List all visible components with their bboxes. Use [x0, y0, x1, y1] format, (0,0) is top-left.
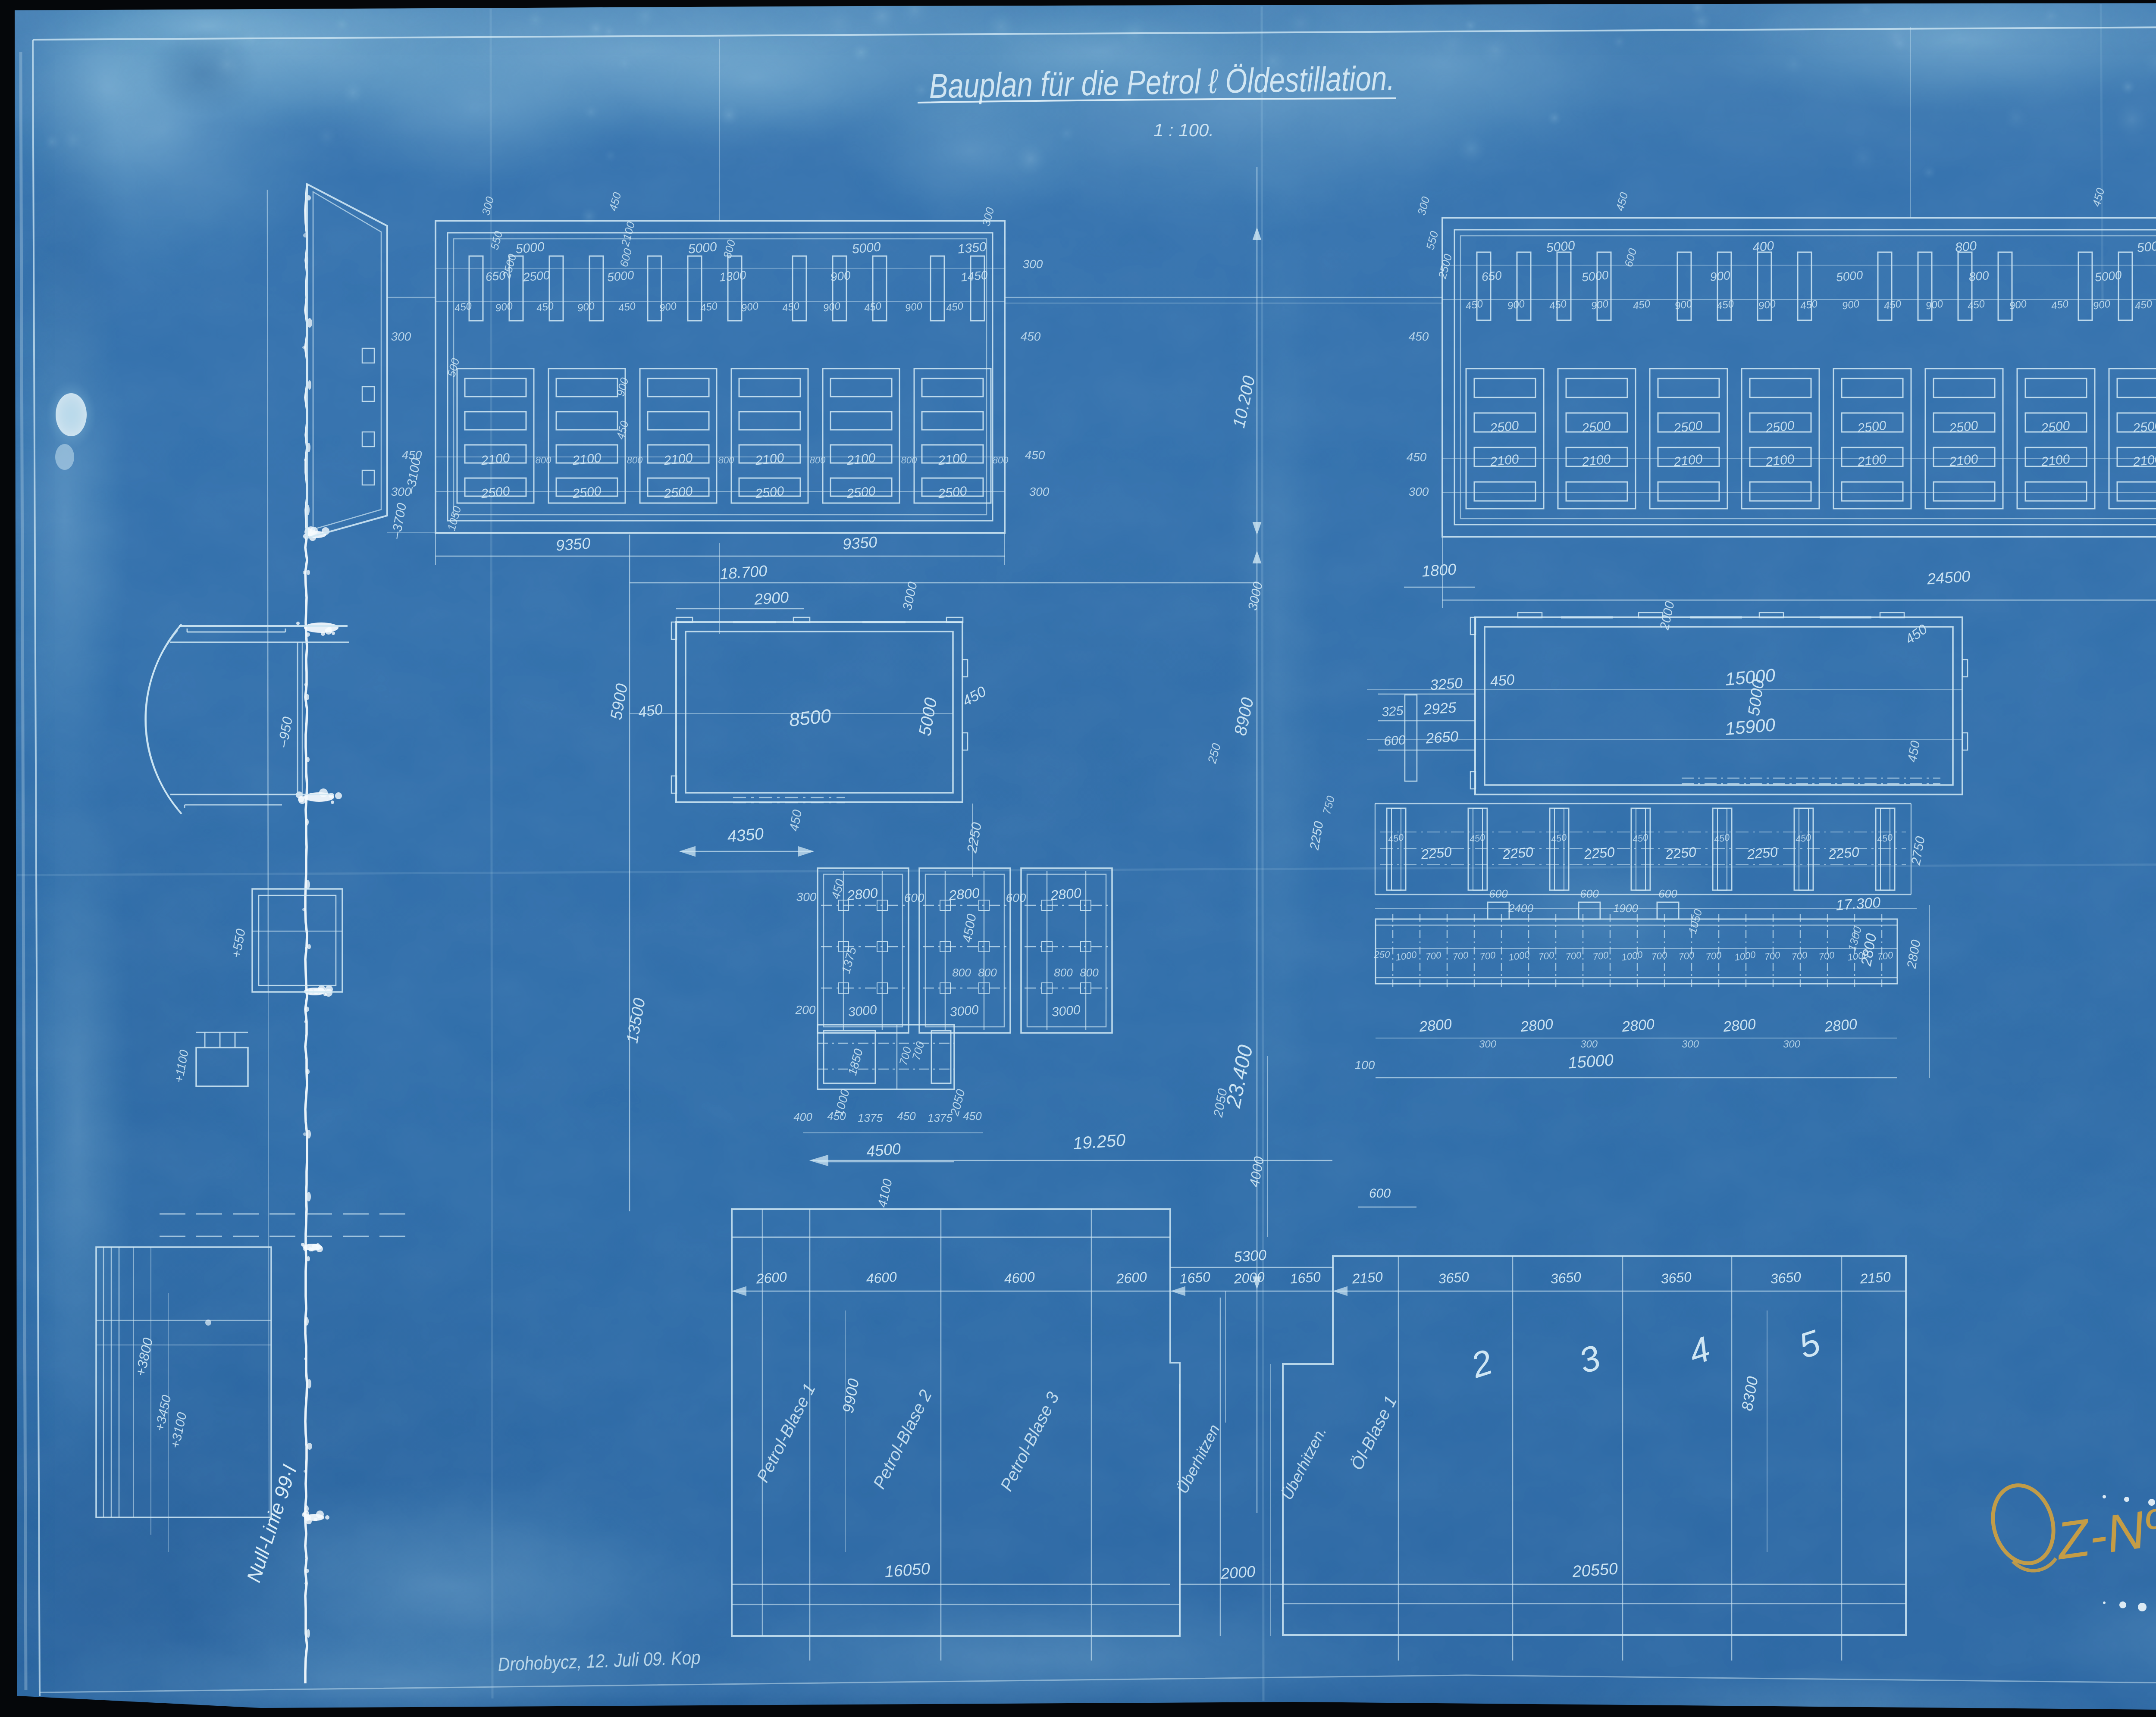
svg-text:800: 800	[1955, 239, 1977, 255]
svg-text:800: 800	[901, 455, 917, 466]
svg-text:2650: 2650	[1425, 728, 1459, 747]
svg-text:5000: 5000	[1836, 268, 1864, 284]
svg-text:3650: 3650	[1550, 1269, 1582, 1287]
svg-text:2000: 2000	[1220, 1562, 1256, 1583]
svg-text:15000: 15000	[1567, 1051, 1614, 1072]
svg-text:2800: 2800	[1050, 885, 1082, 903]
svg-text:700: 700	[1538, 950, 1555, 963]
svg-text:450: 450	[1407, 450, 1427, 464]
svg-text:300: 300	[1479, 1038, 1497, 1050]
svg-text:450: 450	[1876, 832, 1894, 845]
svg-text:400: 400	[793, 1110, 812, 1123]
svg-text:4600: 4600	[865, 1269, 897, 1287]
svg-text:900: 900	[1758, 298, 1777, 312]
svg-text:300: 300	[1783, 1038, 1801, 1050]
svg-text:325: 325	[1381, 704, 1404, 719]
svg-text:2800: 2800	[1621, 1016, 1655, 1035]
svg-text:20550: 20550	[1571, 1560, 1618, 1581]
svg-text:450: 450	[2050, 298, 2069, 312]
svg-text:2500: 2500	[522, 268, 551, 284]
svg-text:5000: 5000	[2136, 238, 2156, 255]
svg-text:1375: 1375	[858, 1111, 883, 1124]
svg-text:450: 450	[1025, 448, 1045, 462]
svg-text:300: 300	[1029, 485, 1050, 498]
svg-text:450: 450	[1409, 330, 1429, 343]
svg-text:200: 200	[795, 1003, 816, 1016]
svg-text:18.700: 18.700	[719, 562, 768, 583]
svg-text:700: 700	[1705, 950, 1723, 963]
svg-text:2150: 2150	[1351, 1269, 1383, 1287]
svg-text:600: 600	[904, 891, 924, 904]
svg-text:450: 450	[637, 701, 664, 721]
svg-text:600: 600	[1580, 887, 1599, 900]
svg-text:1 : 100.: 1 : 100.	[1153, 120, 1214, 140]
svg-text:1450: 1450	[960, 268, 988, 284]
svg-text:600: 600	[1658, 887, 1677, 900]
svg-text:450: 450	[1548, 298, 1567, 312]
svg-text:900: 900	[658, 300, 677, 314]
svg-text:450: 450	[897, 1110, 916, 1123]
svg-text:5000: 5000	[515, 240, 545, 256]
svg-text:4350: 4350	[727, 825, 765, 846]
svg-text:3650: 3650	[1770, 1269, 1802, 1287]
svg-text:2800: 2800	[846, 885, 878, 903]
svg-text:2250: 2250	[1583, 844, 1615, 862]
svg-text:2800: 2800	[1520, 1016, 1554, 1035]
svg-text:300: 300	[1682, 1038, 1699, 1050]
svg-text:700: 700	[1425, 950, 1442, 963]
svg-text:700: 700	[1764, 950, 1781, 963]
svg-text:900: 900	[1710, 269, 1731, 284]
svg-text:800: 800	[718, 455, 734, 466]
svg-text:800: 800	[627, 455, 643, 466]
svg-text:300: 300	[391, 330, 411, 343]
svg-text:450: 450	[1632, 832, 1649, 845]
svg-text:450: 450	[1021, 330, 1041, 343]
svg-text:700: 700	[1791, 950, 1808, 963]
svg-text:250: 250	[1374, 949, 1390, 960]
svg-text:450: 450	[1799, 298, 1818, 312]
svg-text:2925: 2925	[1423, 699, 1457, 718]
svg-text:900: 900	[495, 300, 514, 314]
svg-text:5300: 5300	[1233, 1247, 1267, 1265]
svg-text:450: 450	[1795, 832, 1812, 845]
svg-text:3000: 3000	[1051, 1003, 1081, 1020]
svg-text:5000: 5000	[687, 240, 718, 256]
svg-text:450: 450	[536, 300, 555, 314]
svg-text:3000: 3000	[949, 1003, 979, 1020]
svg-text:450: 450	[2134, 298, 2153, 312]
svg-text:450: 450	[1465, 298, 1484, 312]
svg-text:1650: 1650	[1289, 1269, 1321, 1287]
svg-text:700: 700	[1479, 950, 1497, 963]
svg-text:300: 300	[1580, 1038, 1598, 1050]
svg-text:2250: 2250	[1746, 844, 1778, 862]
svg-text:450: 450	[863, 300, 882, 314]
svg-text:700: 700	[1651, 950, 1668, 963]
svg-text:3650: 3650	[1660, 1269, 1692, 1287]
svg-text:9350: 9350	[842, 533, 878, 553]
svg-text:800: 800	[810, 455, 826, 466]
svg-text:300: 300	[796, 890, 817, 904]
svg-text:2500: 2500	[2132, 419, 2156, 436]
svg-text:5000: 5000	[1581, 268, 1609, 284]
svg-text:700: 700	[1678, 950, 1695, 963]
svg-text:5000: 5000	[607, 268, 635, 284]
svg-text:2800: 2800	[948, 885, 980, 903]
svg-text:900: 900	[2009, 298, 2028, 312]
svg-text:450: 450	[963, 1110, 982, 1123]
svg-text:700: 700	[1592, 950, 1610, 963]
svg-text:2250: 2250	[1827, 844, 1860, 862]
svg-text:1900: 1900	[1613, 902, 1638, 915]
svg-text:800: 800	[536, 455, 552, 466]
svg-text:2800: 2800	[1824, 1016, 1858, 1035]
svg-text:24500: 24500	[1926, 567, 1971, 588]
svg-text:800: 800	[952, 966, 971, 979]
svg-text:2600: 2600	[755, 1269, 787, 1287]
svg-text:700: 700	[1452, 950, 1470, 963]
svg-text:450: 450	[945, 300, 964, 314]
svg-text:2100: 2100	[2132, 452, 2156, 469]
svg-text:900: 900	[577, 300, 595, 314]
svg-text:19.250: 19.250	[1072, 1131, 1126, 1153]
svg-text:2150: 2150	[1859, 1269, 1891, 1287]
svg-text:2250: 2250	[1420, 844, 1452, 862]
svg-text:800: 800	[978, 966, 997, 979]
svg-text:450: 450	[1713, 832, 1731, 845]
svg-text:3250: 3250	[1429, 675, 1463, 693]
svg-text:3000: 3000	[847, 1003, 877, 1020]
svg-text:5000: 5000	[851, 240, 881, 256]
svg-text:5000: 5000	[1545, 238, 1576, 255]
svg-text:450: 450	[1716, 298, 1735, 312]
svg-text:450: 450	[1469, 832, 1486, 845]
svg-text:600: 600	[1006, 891, 1026, 904]
svg-text:900: 900	[1841, 298, 1860, 312]
svg-text:900: 900	[830, 269, 852, 284]
svg-text:450: 450	[1967, 298, 1986, 312]
svg-text:450: 450	[781, 300, 800, 314]
svg-text:2250: 2250	[1664, 844, 1697, 862]
svg-text:450: 450	[699, 300, 718, 314]
svg-text:9350: 9350	[555, 534, 591, 554]
svg-text:300: 300	[1023, 257, 1043, 271]
svg-text:900: 900	[1674, 298, 1693, 312]
svg-text:600: 600	[1489, 887, 1508, 900]
svg-text:1650: 1650	[1179, 1269, 1211, 1287]
svg-text:650: 650	[1481, 269, 1503, 284]
svg-text:2250: 2250	[1501, 844, 1534, 862]
svg-text:900: 900	[822, 300, 841, 314]
svg-text:800: 800	[1054, 966, 1073, 979]
svg-text:450: 450	[1489, 672, 1515, 690]
svg-text:1350: 1350	[957, 240, 987, 256]
svg-text:4600: 4600	[1003, 1269, 1035, 1287]
svg-text:450: 450	[454, 300, 473, 314]
svg-text:1800: 1800	[1421, 560, 1457, 580]
svg-text:2800: 2800	[1722, 1016, 1757, 1035]
svg-text:3650: 3650	[1438, 1269, 1470, 1287]
svg-text:450: 450	[1883, 298, 1902, 312]
svg-text:700: 700	[1565, 950, 1583, 963]
svg-text:1300: 1300	[719, 268, 747, 284]
svg-text:900: 900	[904, 300, 923, 314]
svg-text:600: 600	[1369, 1186, 1391, 1201]
svg-text:2000: 2000	[1233, 1269, 1265, 1287]
svg-text:450: 450	[617, 300, 636, 314]
svg-text:800: 800	[993, 455, 1009, 466]
svg-text:8500: 8500	[788, 705, 832, 731]
svg-text:300: 300	[1409, 485, 1429, 498]
svg-text:16050: 16050	[884, 1560, 931, 1581]
svg-text:800: 800	[1968, 269, 1990, 284]
svg-text:2900: 2900	[753, 588, 790, 608]
svg-text:400: 400	[1752, 239, 1775, 255]
svg-text:2800: 2800	[1418, 1016, 1453, 1035]
svg-text:800: 800	[1080, 966, 1099, 979]
svg-text:600: 600	[1383, 733, 1406, 748]
svg-text:700: 700	[1877, 950, 1894, 963]
svg-text:900: 900	[1590, 298, 1609, 312]
svg-text:17.300: 17.300	[1835, 894, 1881, 913]
svg-text:2600: 2600	[1115, 1269, 1147, 1287]
svg-text:700: 700	[1818, 950, 1836, 963]
svg-text:900: 900	[1507, 298, 1526, 312]
svg-text:5000: 5000	[2094, 268, 2122, 284]
svg-text:2400: 2400	[1508, 902, 1533, 915]
svg-text:900: 900	[740, 300, 759, 314]
svg-text:100: 100	[1355, 1058, 1375, 1072]
svg-text:900: 900	[1925, 298, 1944, 312]
svg-text:900: 900	[2092, 298, 2111, 312]
svg-text:450: 450	[1632, 298, 1651, 312]
svg-text:450: 450	[1387, 832, 1405, 845]
svg-text:4500: 4500	[865, 1140, 901, 1160]
svg-text:450: 450	[1550, 832, 1568, 845]
